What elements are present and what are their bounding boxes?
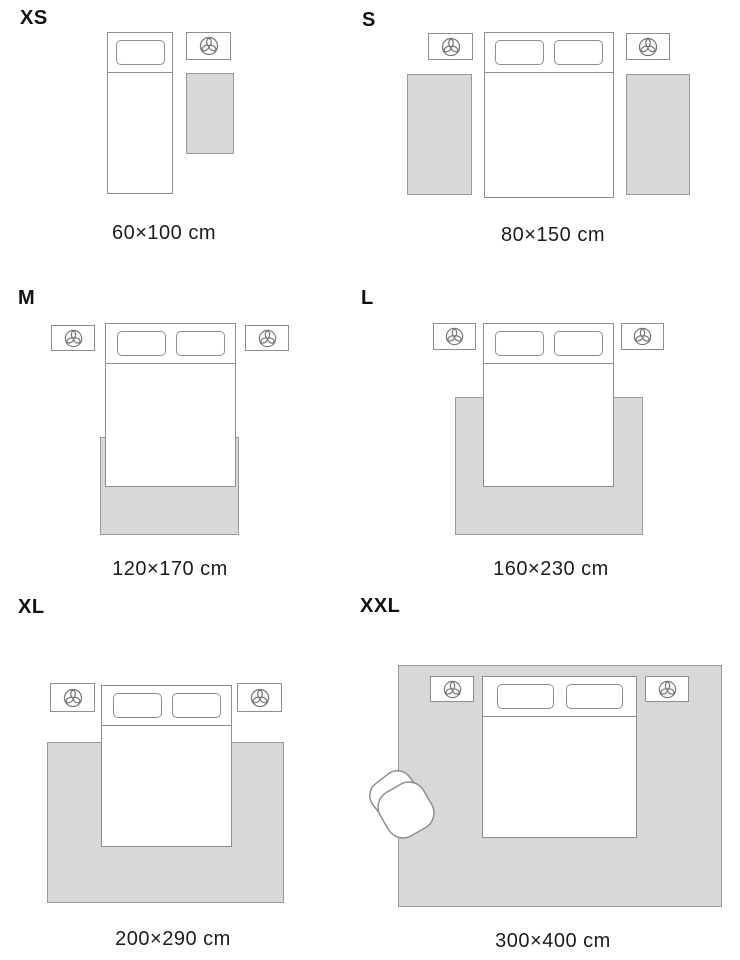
plant-icon: [442, 679, 463, 700]
dimension-caption: 160×230 cm: [431, 557, 671, 581]
plant-icon: [62, 687, 84, 709]
size-label-m: M: [18, 287, 35, 309]
dimension-caption: 120×170 cm: [50, 557, 290, 581]
size-cell-xl: XL 200×290 cm: [0, 590, 360, 960]
dimension-caption: 80×150 cm: [433, 223, 673, 247]
plant-icon: [63, 328, 84, 349]
plant-icon: [257, 328, 278, 349]
pillow: [495, 40, 544, 65]
nightstand-left: [430, 676, 474, 702]
nightstand-right: [237, 683, 282, 712]
plant-icon: [444, 326, 465, 347]
size-label-s: S: [362, 9, 376, 31]
dimension-caption: 200×290 cm: [53, 927, 293, 951]
size-cell-l: L 160×230 cm: [360, 280, 740, 590]
nightstand-left: [50, 683, 95, 712]
plant-icon: [440, 36, 462, 58]
plant-icon: [249, 687, 271, 709]
rug: [186, 73, 234, 154]
pillow: [117, 331, 166, 356]
pillow: [554, 40, 603, 65]
armchair: [361, 759, 445, 851]
bed-headboard: [484, 324, 613, 364]
dimension-caption: 300×400 cm: [433, 929, 673, 953]
pillow: [495, 331, 544, 356]
pillow: [497, 684, 554, 709]
pillow: [566, 684, 623, 709]
rug-size-guide: XS 60×100 cm S: [0, 0, 740, 960]
size-cell-m: M 120×170 cm: [0, 280, 360, 590]
nightstand-left: [428, 33, 473, 60]
nightstand-right: [626, 33, 670, 60]
double-bed: [105, 323, 236, 487]
nightstand-right: [645, 676, 689, 702]
size-cell-s: S 80×150 cm: [360, 0, 740, 280]
nightstand-left: [51, 325, 95, 351]
size-cell-xs: XS 60×100 cm: [0, 0, 360, 280]
bed-headboard: [483, 677, 636, 717]
plant-icon: [637, 36, 659, 58]
double-bed: [101, 685, 232, 847]
size-label-l: L: [361, 287, 374, 309]
plant-icon: [632, 326, 653, 347]
pillow: [113, 693, 162, 718]
plant-icon: [657, 679, 678, 700]
pillow: [172, 693, 221, 718]
bed-headboard: [485, 33, 613, 73]
plant-icon: [198, 35, 220, 57]
nightstand: [186, 32, 231, 60]
double-bed: [483, 323, 614, 487]
single-bed: [107, 32, 173, 194]
pillow: [116, 40, 165, 65]
size-label-xl: XL: [18, 596, 45, 618]
size-label-xxl: XXL: [360, 595, 400, 617]
double-bed: [482, 676, 637, 838]
pillow: [176, 331, 225, 356]
nightstand-left: [433, 323, 476, 350]
dimension-caption: 60×100 cm: [44, 221, 284, 245]
nightstand-right: [245, 325, 289, 351]
rug-left: [407, 74, 472, 195]
size-label-xs: XS: [20, 7, 48, 29]
nightstand-right: [621, 323, 664, 350]
bed-headboard: [102, 686, 231, 726]
double-bed: [484, 32, 614, 198]
bed-headboard: [108, 33, 172, 73]
bed-headboard: [106, 324, 235, 364]
size-cell-xxl: XXL 3: [360, 590, 740, 960]
rug-right: [626, 74, 690, 195]
pillow: [554, 331, 603, 356]
